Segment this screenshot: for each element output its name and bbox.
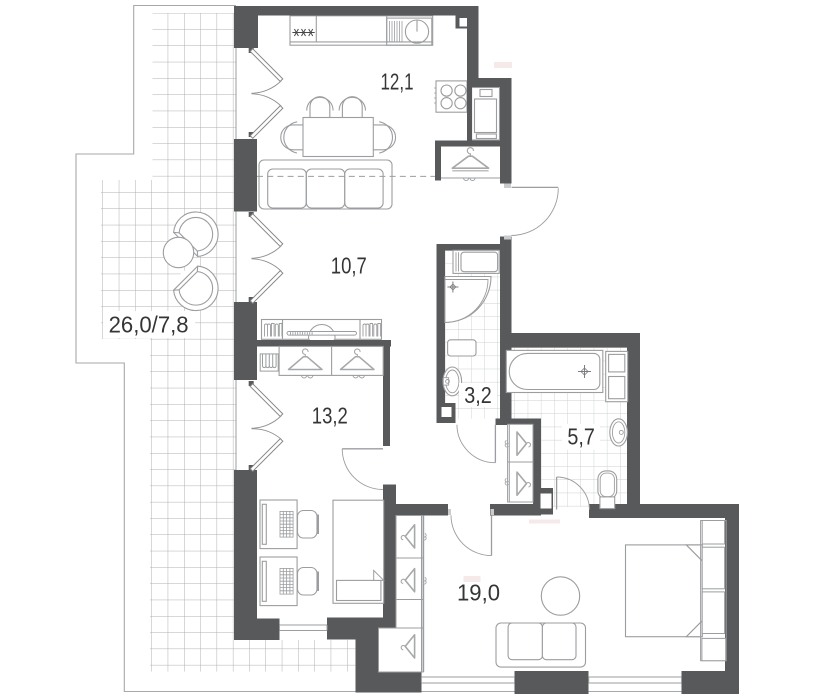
svg-text:19,0: 19,0 xyxy=(457,580,500,606)
svg-text:3,2: 3,2 xyxy=(464,382,492,408)
svg-text:10,7: 10,7 xyxy=(331,253,367,279)
svg-text:13,2: 13,2 xyxy=(312,403,348,429)
svg-text:5,7: 5,7 xyxy=(567,424,595,450)
svg-text:26,0/7,8: 26,0/7,8 xyxy=(109,312,189,338)
svg-text:12,1: 12,1 xyxy=(381,69,414,95)
